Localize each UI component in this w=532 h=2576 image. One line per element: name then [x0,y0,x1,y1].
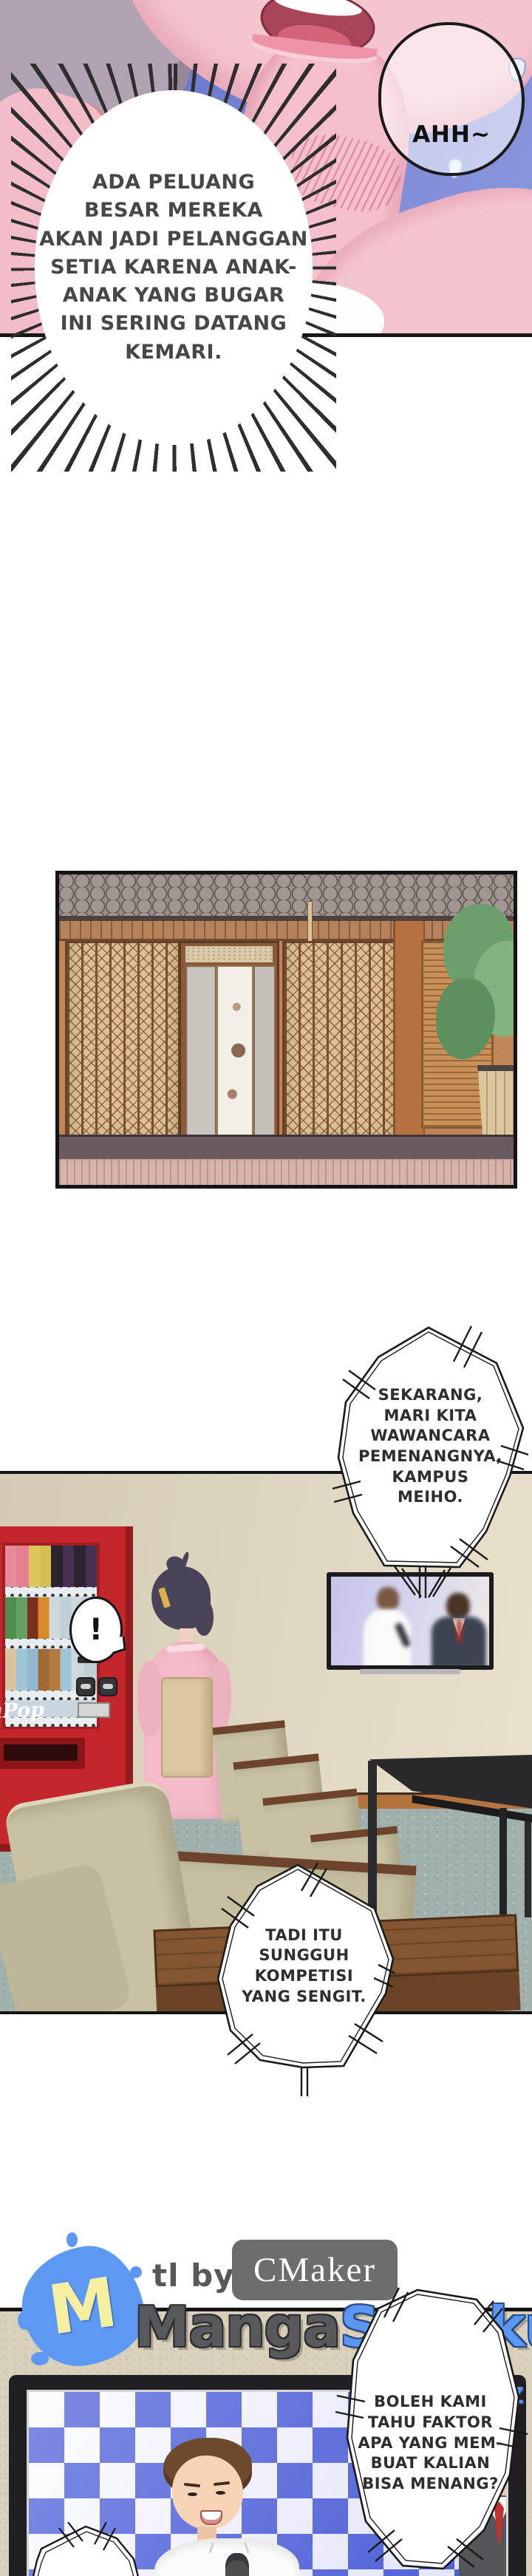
site-name-gray: Manga [134,2294,340,2359]
narration-text: ADA PELUANG BESAR MEREKA AKAN JADI PELAN… [39,169,308,367]
wood-lattice-left [65,941,180,1157]
tv-announce-text: SEKARANG, MARI KITA WAWANCARA PEMENANGNY… [358,1385,502,1508]
table-leg [499,1808,507,1917]
vending-brand-label: aPop [0,1693,53,1727]
pillar [393,921,425,1155]
woman-in-kimono [144,1566,227,1810]
speech-bubble-tv-question: BOLEH KAMI TAHU FAKTOR APA YANG MEM- BUA… [332,2286,528,2575]
wood-planter [477,1065,517,1143]
vending-button [76,1677,95,1696]
eye [188,2492,197,2496]
hair-strand [194,1599,214,1636]
speech-bubble-burst: ADA PELUANG BESAR MEREKA AKAN JADI PELAN… [11,64,336,472]
wood-lattice-right [282,941,398,1157]
tv-question-text: BOLEH KAMI TAHU FAKTOR APA YANG MEM- BUA… [358,2392,502,2495]
translator-name: CMaker [253,2250,376,2290]
speech-bubble-exclaim: ! [69,1597,123,1663]
tiled-roof [59,874,514,921]
bubble-text-wrap: SEKARANG, MARI KITA WAWANCARA PEMENANGNY… [355,1354,506,1539]
bubble-text-wrap: TADI ITU SUNGGUH KOMPETISI YANG SENGIT. [232,1892,376,2040]
speech-bubble-tv-comment: TADI ITU SUNGGUH KOMPETISI YANG SENGIT. [214,1861,395,2101]
tv-comment-text: TADI ITU SUNGGUH KOMPETISI YANG SENGIT. [242,1926,366,2008]
panel-building-exterior [55,871,517,1189]
dispenser-slot [0,1738,85,1769]
speech-bubble-partial [30,2522,140,2576]
table-leg [525,1821,531,1917]
microphone [225,2553,249,2576]
exclaim-text: ! [89,1613,103,1647]
site-logo-splat: M [21,2240,145,2373]
obi-sash [161,1677,213,1778]
keypad [78,1702,110,1718]
logo-letter: M [12,2232,153,2381]
foundation-wall [59,1159,514,1185]
bubble-text-wrap: BOLEH KAMI TAHU FAKTOR APA YANG MEM- BUA… [355,2375,506,2512]
polo-collar [208,2543,250,2553]
speech-bubble-tv-announce: SEKARANG, MARI KITA WAWANCARA PEMENANGNY… [332,1325,528,1600]
kimono-sleeve [137,1661,163,1736]
eye [216,2491,225,2495]
smiling-mouth [200,2510,222,2525]
drink-shelf-row [5,1546,97,1587]
entrance-doorway [179,941,279,1152]
transom-window [185,946,273,962]
sfx-text: AHH~ [412,121,491,148]
shoji-panel-left [185,965,216,1140]
shelf-coils [5,1587,97,1597]
burst-ellipse: ADA PELUANG BESAR MEREKA AKAN JADI PELAN… [35,90,313,445]
coin-slot [98,1677,117,1696]
interviewed-man [154,2438,302,2576]
tv-stand [360,1669,460,1674]
tv-guest-tie [457,1620,462,1642]
shoji-panel-right [253,965,276,1140]
sfx-bubble-ahh: AHH~ [378,22,525,176]
translation-credit-label: tl by [152,2257,235,2294]
noren-curtain [216,965,253,1150]
porch-deck [59,1135,514,1161]
teeth [273,0,363,20]
manga-page: AHH~ ADA PELUANG BESAR MEREKA AKAN JADI … [0,0,532,2576]
